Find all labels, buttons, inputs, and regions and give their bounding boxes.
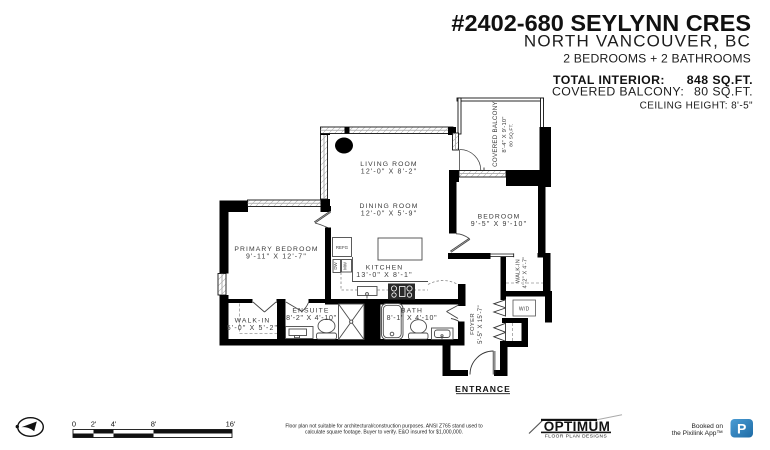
svg-text:4': 4' (111, 420, 117, 429)
svg-text:16': 16' (226, 420, 236, 429)
svg-text:FOYER: FOYER (470, 313, 476, 335)
svg-text:ENTRANCE: ENTRANCE (455, 384, 511, 394)
svg-text:8'-4" X 9'-10": 8'-4" X 9'-10" (502, 116, 508, 152)
svg-text:KITCHEN: KITCHEN (366, 265, 404, 272)
svg-text:80 SQ.FT.: 80 SQ.FT. (509, 123, 515, 146)
svg-text:the Pixilink App™: the Pixilink App™ (672, 430, 723, 437)
svg-text:9'-5" X 9'-10": 9'-5" X 9'-10" (471, 221, 527, 228)
svg-text:NORTH VANCOUVER, BC: NORTH VANCOUVER, BC (524, 32, 751, 51)
svg-text:COVERED BALCONY: COVERED BALCONY (492, 101, 499, 167)
svg-text:Booked on: Booked on (691, 423, 723, 430)
svg-text:BATH: BATH (401, 307, 423, 314)
svg-text:12'-0" X 8'-2": 12'-0" X 8'-2" (361, 169, 417, 176)
svg-text:COVERED BALCONY:: COVERED BALCONY: (552, 85, 684, 99)
svg-text:WALK-IN: WALK-IN (516, 259, 522, 283)
svg-text:DW: DW (333, 261, 338, 269)
svg-text:12'-0" X 5'-9": 12'-0" X 5'-9" (361, 211, 417, 218)
svg-text:BEDROOM: BEDROOM (478, 214, 521, 221)
svg-text:LIVING ROOM: LIVING ROOM (360, 161, 417, 168)
svg-text:8'-1" X 4'-10": 8'-1" X 4'-10" (387, 315, 438, 322)
svg-text:5'-5" X 15'-7": 5'-5" X 15'-7" (478, 305, 484, 344)
svg-text:PRIMARY BEDROOM: PRIMARY BEDROOM (234, 246, 318, 253)
svg-text:CEILING HEIGHT: 8'-5": CEILING HEIGHT: 8'-5" (640, 101, 753, 112)
svg-text:REFG: REFG (336, 245, 349, 250)
svg-text:8'-2" X 4'-10": 8'-2" X 4'-10" (286, 315, 337, 322)
svg-text:8': 8' (151, 420, 157, 429)
svg-text:0: 0 (72, 420, 76, 429)
svg-text:WALK-IN: WALK-IN (235, 317, 271, 324)
svg-text:P: P (737, 421, 746, 437)
svg-text:W/D: W/D (519, 307, 530, 313)
svg-text:FLOOR PLAN DESIGNS: FLOOR PLAN DESIGNS (545, 434, 607, 440)
svg-text:ENSUITE: ENSUITE (292, 307, 329, 314)
svg-text:13'-0" X 8'-1": 13'-0" X 8'-1" (356, 272, 412, 279)
svg-text:9'-11" X 12'-7": 9'-11" X 12'-7" (246, 254, 307, 261)
svg-text:2 BEDROOMS + 2 BATHROOMS: 2 BEDROOMS + 2 BATHROOMS (563, 52, 751, 66)
svg-text:4'-2" X 4'-7": 4'-2" X 4'-7" (523, 257, 529, 289)
svg-text:DINING ROOM: DINING ROOM (360, 203, 419, 210)
svg-text:calculate square footage. Buye: calculate square footage. Buyer to verif… (305, 430, 463, 436)
svg-text:80 SQ.FT.: 80 SQ.FT. (694, 85, 753, 99)
svg-text:2': 2' (91, 420, 97, 429)
svg-text:5'-0" X 5'-2": 5'-0" X 5'-2" (227, 325, 278, 332)
svg-text:MW: MW (343, 261, 348, 270)
